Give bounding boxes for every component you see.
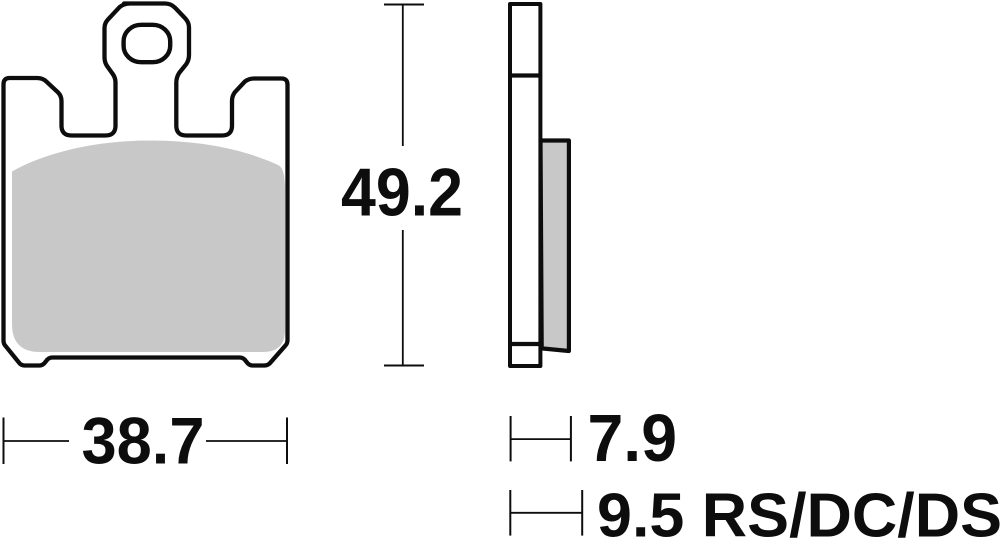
- svg-text:38.7: 38.7: [82, 404, 205, 478]
- svg-text:7.9: 7.9: [588, 401, 678, 476]
- svg-text:9.5 RS/DC/DS: 9.5 RS/DC/DS: [597, 480, 1000, 540]
- svg-text:49.2: 49.2: [341, 155, 463, 231]
